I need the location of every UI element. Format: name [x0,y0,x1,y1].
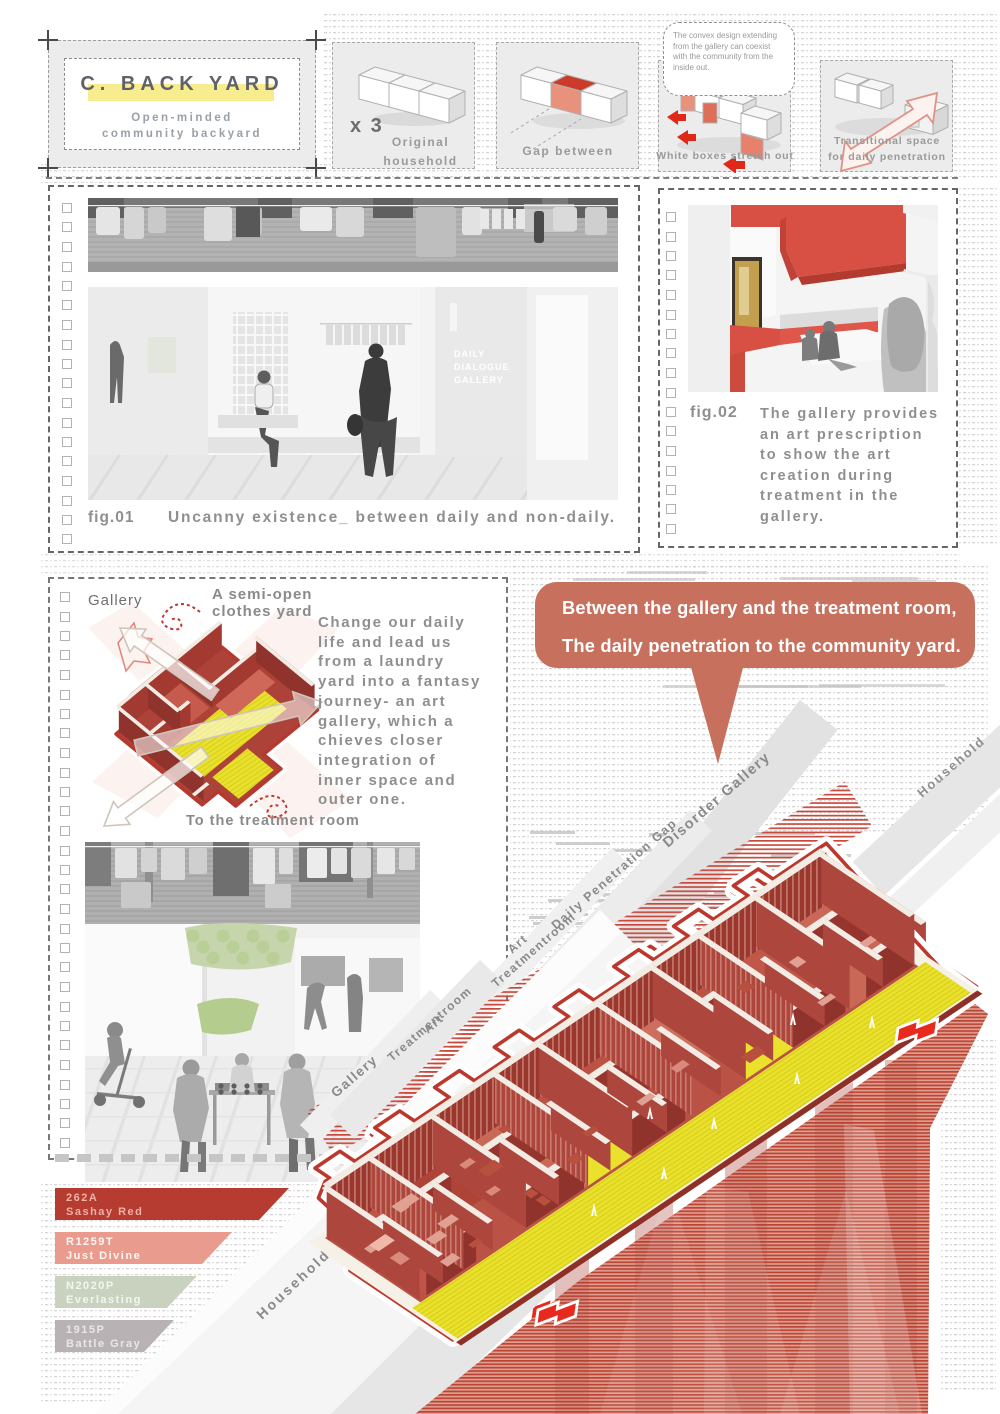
svg-text:N2020P: N2020P [66,1280,115,1292]
svg-text:Everlasting: Everlasting [66,1294,142,1306]
svg-text:262A: 262A [66,1192,98,1204]
svg-text:1915P: 1915P [66,1324,105,1336]
svg-text:R1259T: R1259T [66,1236,114,1248]
svg-text:Battle Gray: Battle Gray [66,1338,141,1350]
svg-text:Just Divine: Just Divine [66,1250,141,1262]
svg-text:Sashay Red: Sashay Red [66,1206,143,1218]
